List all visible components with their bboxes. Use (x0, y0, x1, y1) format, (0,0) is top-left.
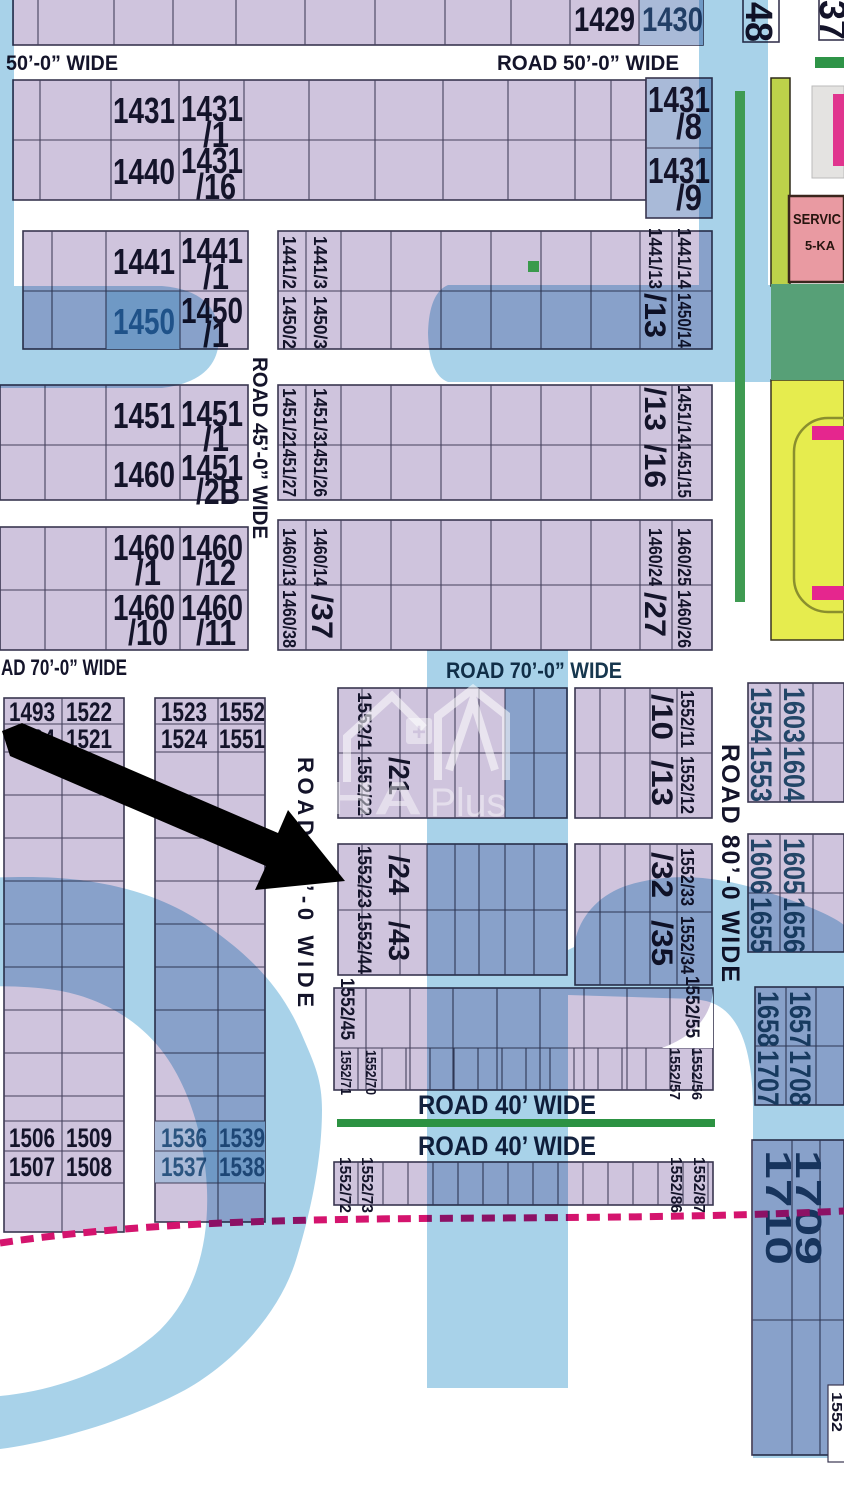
svg-text:1552/44: 1552/44 (353, 912, 374, 974)
svg-text:/2B: /2B (196, 471, 240, 512)
svg-text:1552: 1552 (219, 697, 265, 727)
svg-text:1441/2: 1441/2 (279, 236, 299, 289)
svg-text:1451/2: 1451/2 (279, 388, 299, 441)
svg-text:1450/3: 1450/3 (310, 296, 330, 349)
svg-text:1451/14: 1451/14 (674, 385, 694, 443)
svg-text:1552/57: 1552/57 (666, 1048, 683, 1100)
svg-text:1552/71: 1552/71 (337, 1050, 354, 1095)
svg-text:/43: /43 (382, 921, 414, 961)
svg-text:1553: 1553 (744, 746, 777, 802)
svg-text:1552: 1552 (828, 1392, 844, 1432)
svg-text:+: + (412, 719, 426, 746)
svg-text:HA: HA (326, 772, 422, 824)
svg-text:1603: 1603 (777, 687, 810, 743)
svg-text:/10: /10 (128, 612, 168, 653)
svg-text:1523: 1523 (161, 697, 207, 727)
svg-text:1441: 1441 (113, 241, 175, 282)
svg-text:1451/26: 1451/26 (310, 440, 330, 497)
svg-text:1460/14: 1460/14 (310, 528, 330, 586)
svg-text:1451/15: 1451/15 (674, 443, 694, 498)
svg-text:1506: 1506 (9, 1123, 55, 1153)
svg-text:/27: /27 (638, 592, 671, 637)
svg-text:1460/26: 1460/26 (674, 590, 694, 648)
svg-text:1605: 1605 (777, 838, 810, 894)
svg-text:1451: 1451 (113, 395, 175, 436)
svg-text:1493: 1493 (9, 697, 55, 727)
svg-text:1440: 1440 (113, 151, 175, 192)
svg-text:1552/70: 1552/70 (362, 1050, 379, 1095)
svg-text:Plus: Plus (430, 781, 506, 825)
svg-text:/11: /11 (196, 612, 236, 653)
svg-text:/24: /24 (382, 855, 414, 895)
svg-text:1460/38: 1460/38 (279, 590, 299, 648)
svg-text:/37: /37 (305, 594, 338, 639)
svg-text:1460/13: 1460/13 (279, 528, 299, 586)
svg-text:37: 37 (811, 0, 844, 40)
svg-text:1552/12: 1552/12 (677, 756, 697, 814)
svg-text:1431: 1431 (113, 90, 175, 131)
svg-text:1524: 1524 (161, 724, 207, 754)
svg-text:1552/72: 1552/72 (336, 1157, 353, 1213)
svg-text:SERVIC: SERVIC (793, 211, 841, 228)
svg-text:1441/13: 1441/13 (645, 228, 665, 289)
svg-text:1507: 1507 (9, 1152, 55, 1182)
svg-text:1441/14: 1441/14 (674, 228, 694, 289)
svg-text:1460: 1460 (113, 454, 175, 495)
svg-text:/16: /16 (638, 444, 671, 488)
svg-text:1554: 1554 (744, 687, 777, 743)
svg-text:/10: /10 (645, 694, 678, 740)
svg-text:1460/24: 1460/24 (645, 528, 665, 586)
svg-text:/13: /13 (638, 387, 671, 431)
svg-text:1509: 1509 (66, 1123, 112, 1153)
svg-text:1552/23: 1552/23 (353, 846, 374, 908)
svg-text:1552/73: 1552/73 (358, 1157, 375, 1213)
svg-text:1604: 1604 (777, 746, 810, 802)
svg-text:1441/3: 1441/3 (310, 236, 330, 289)
svg-text:1460/25: 1460/25 (674, 528, 694, 586)
svg-text:/13: /13 (645, 760, 678, 806)
svg-text:1430: 1430 (642, 1, 703, 39)
svg-text:5-KA: 5-KA (805, 238, 836, 253)
svg-text:/16: /16 (196, 166, 236, 207)
svg-text:1552/87: 1552/87 (690, 1157, 707, 1213)
svg-text:/8: /8 (676, 106, 702, 147)
svg-text:1429: 1429 (574, 1, 635, 39)
svg-text:1552/56: 1552/56 (688, 1048, 705, 1100)
svg-text:1450/2: 1450/2 (279, 296, 299, 349)
svg-text:1552/11: 1552/11 (677, 690, 697, 748)
svg-text:50’-0” WIDE: 50’-0” WIDE (6, 52, 118, 75)
svg-text:1451/3: 1451/3 (310, 388, 330, 441)
svg-text:1552/86: 1552/86 (667, 1157, 684, 1213)
svg-text:1451/27: 1451/27 (279, 440, 299, 497)
svg-text:1508: 1508 (66, 1152, 112, 1182)
svg-text:1522: 1522 (66, 697, 112, 727)
svg-text:1537: 1537 (161, 1152, 207, 1182)
svg-text:ROAD 45’-0” WIDE: ROAD 45’-0” WIDE (248, 357, 271, 539)
svg-text:AD 70’-0” WIDE: AD 70’-0” WIDE (1, 655, 127, 680)
svg-text:1606: 1606 (744, 838, 777, 894)
svg-text:ROAD 50’-0” WIDE: ROAD 50’-0” WIDE (497, 52, 679, 75)
svg-text:1552/45: 1552/45 (336, 978, 357, 1040)
svg-text:1551: 1551 (219, 724, 265, 754)
